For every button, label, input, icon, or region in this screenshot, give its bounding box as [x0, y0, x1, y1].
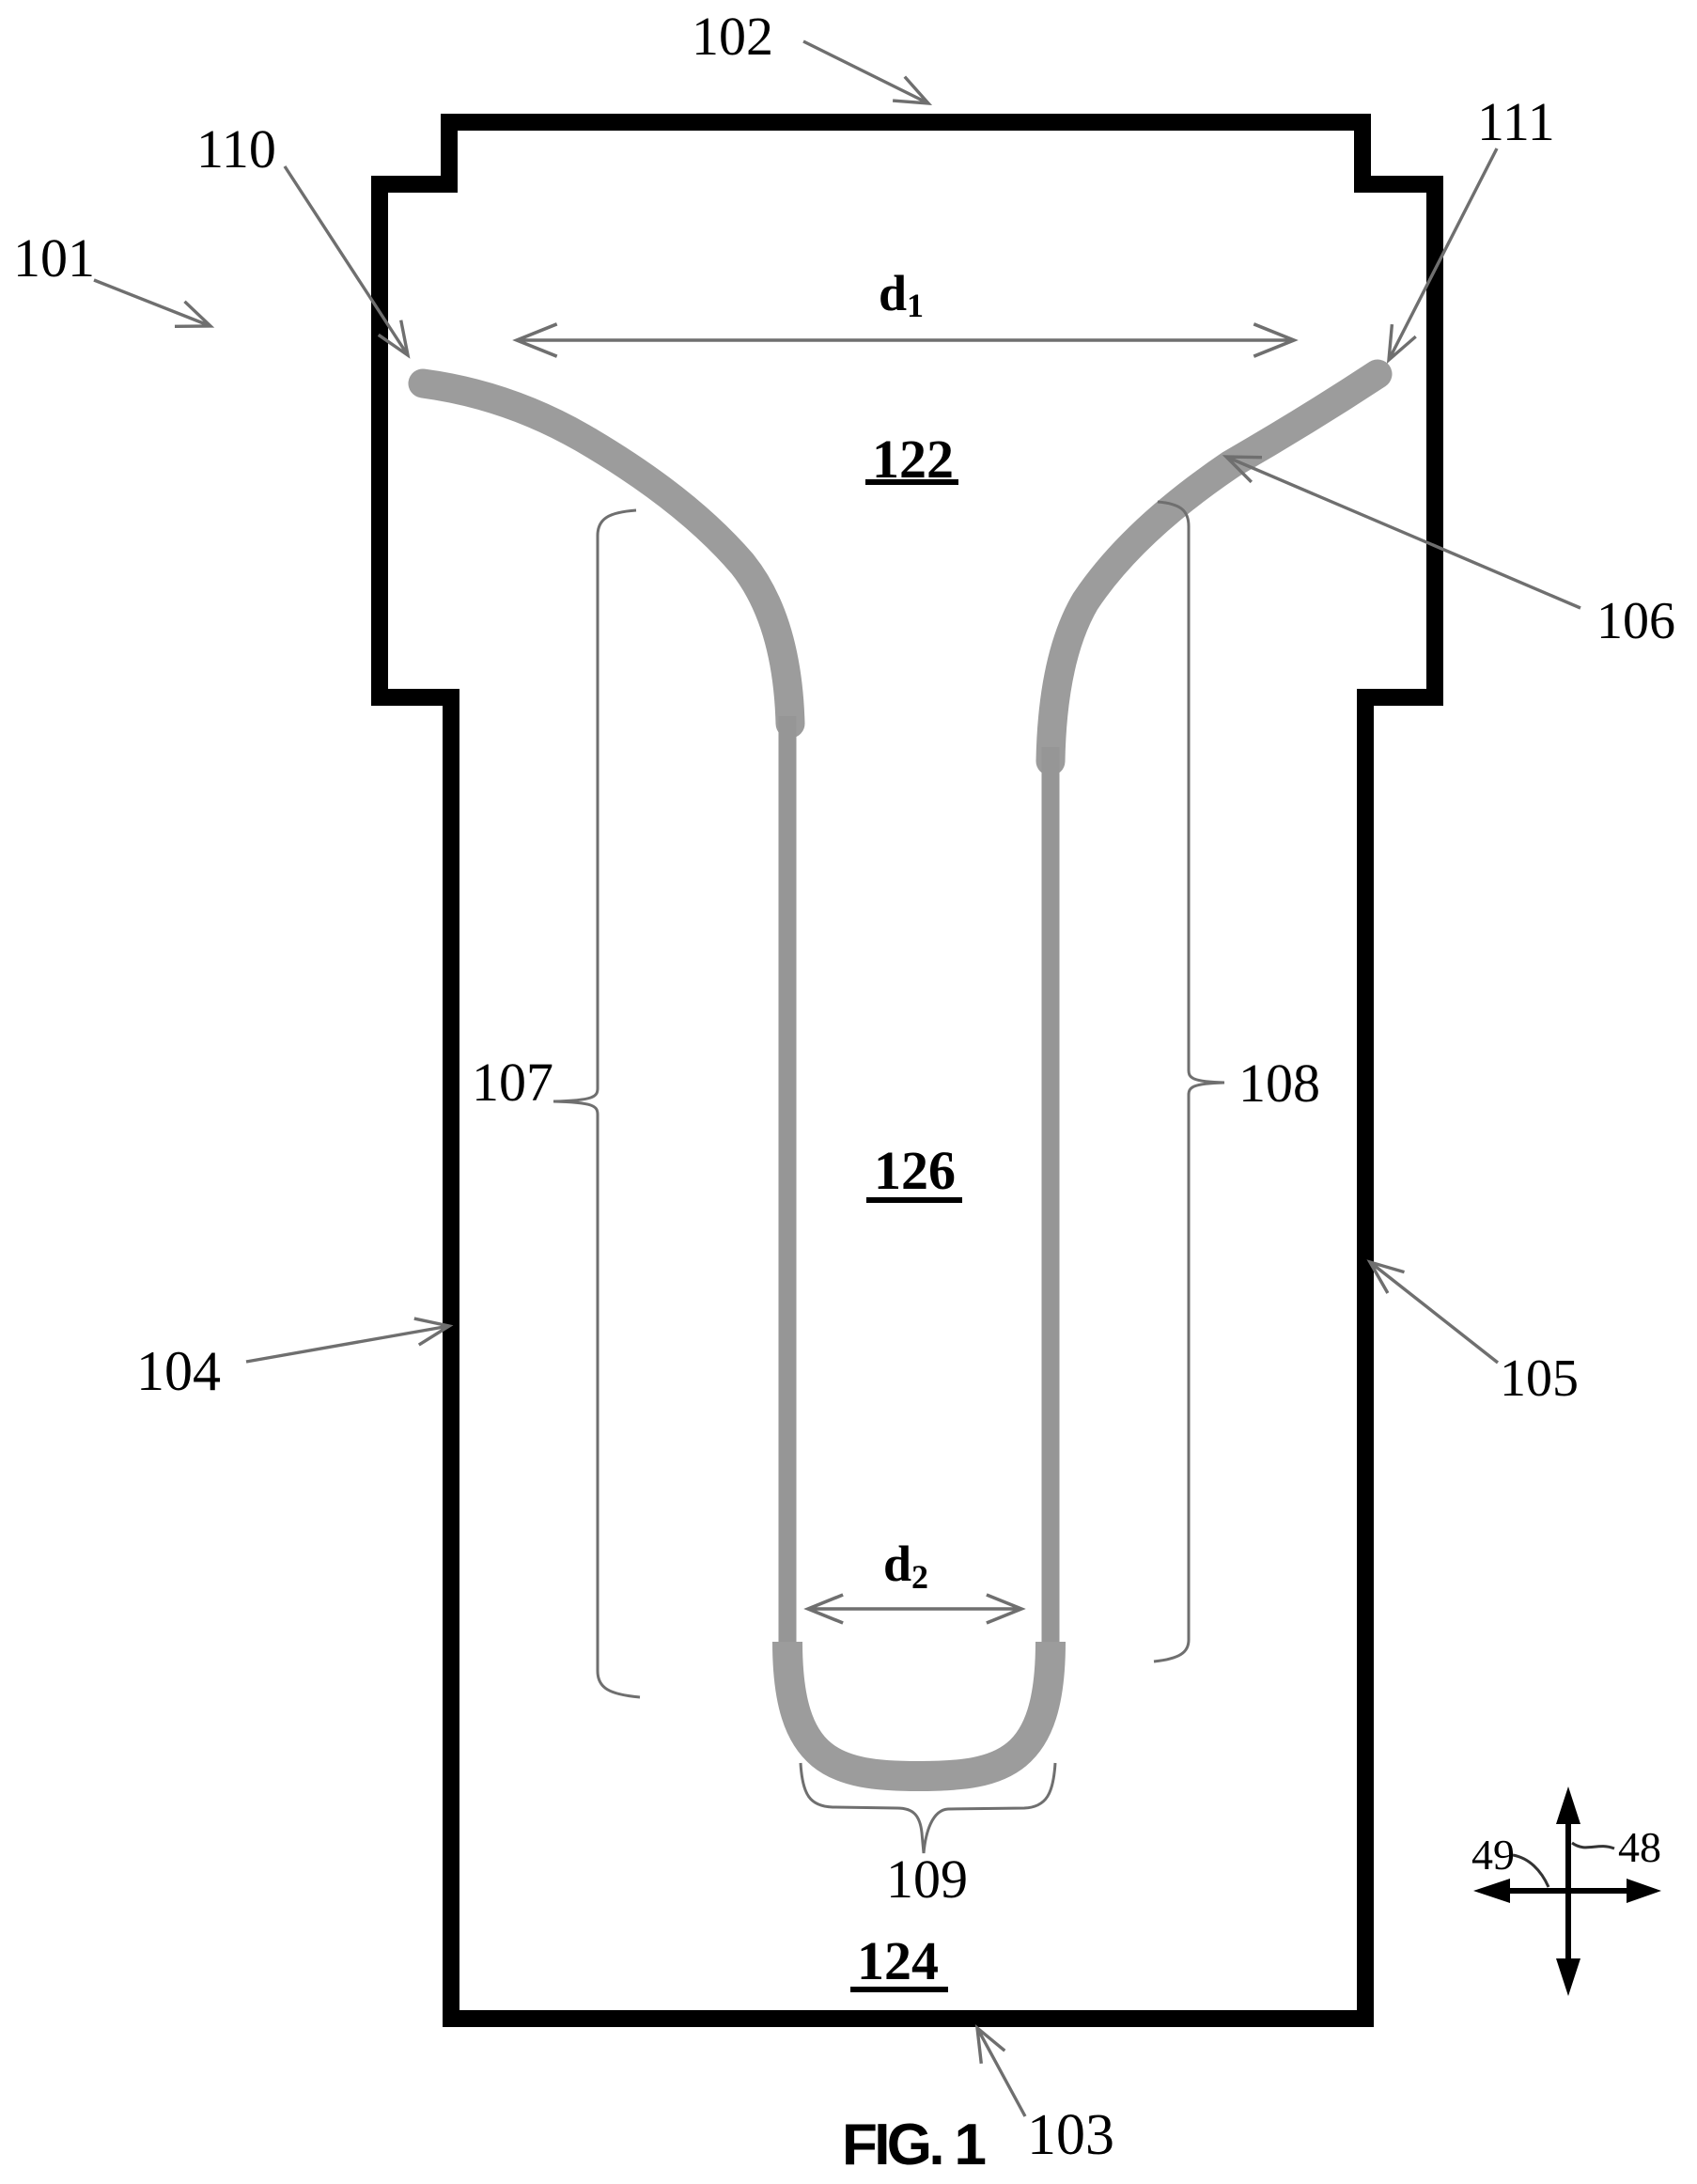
svg-text:d2: d2	[883, 1536, 928, 1596]
svg-text:108: 108	[1238, 1053, 1320, 1114]
svg-text:FIG. 1: FIG. 1	[842, 2113, 987, 2177]
svg-text:103: 103	[1027, 2103, 1114, 2167]
svg-text:109: 109	[886, 1849, 968, 1910]
svg-text:102: 102	[692, 6, 773, 67]
svg-text:101: 101	[13, 227, 95, 289]
svg-text:126: 126	[874, 1140, 956, 1201]
svg-text:105: 105	[1500, 1349, 1579, 1408]
svg-text:106: 106	[1596, 592, 1675, 650]
svg-text:49: 49	[1471, 1831, 1515, 1879]
svg-text:111: 111	[1477, 91, 1555, 152]
svg-text:48: 48	[1618, 1823, 1661, 1871]
svg-text:107: 107	[472, 1052, 553, 1113]
svg-text:124: 124	[857, 1930, 939, 1991]
svg-text:104: 104	[136, 1340, 221, 1402]
svg-text:d1: d1	[879, 265, 924, 324]
svg-text:110: 110	[196, 118, 276, 179]
